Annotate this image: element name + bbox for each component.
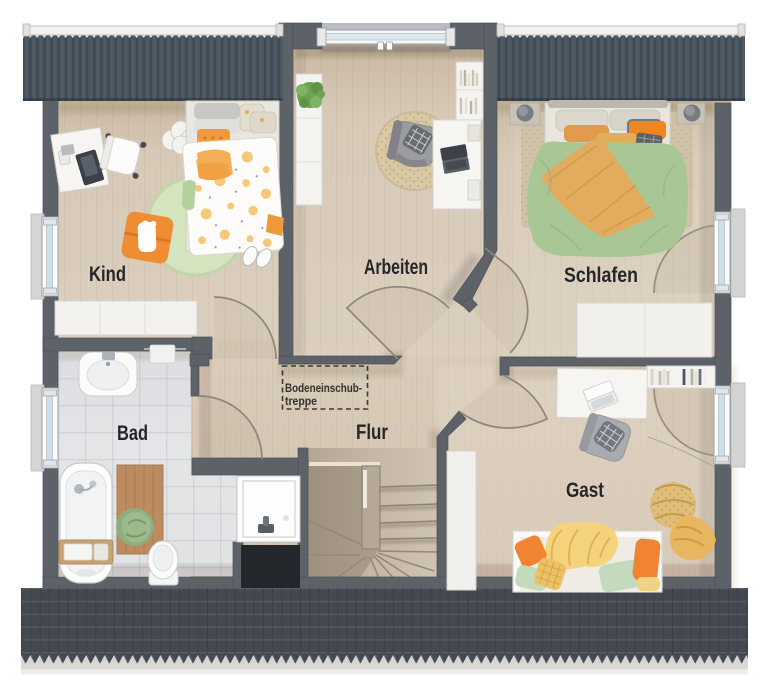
svg-text:Kind: Kind [89,263,126,286]
svg-text:Bodeneinschub-: Bodeneinschub- [285,381,362,395]
svg-text:Gast: Gast [566,479,604,502]
svg-text:Bad: Bad [117,422,148,445]
svg-text:Schlafen: Schlafen [564,264,638,287]
svg-text:treppe: treppe [285,394,317,408]
svg-text:Arbeiten: Arbeiten [364,256,428,279]
svg-text:Flur: Flur [356,421,388,444]
